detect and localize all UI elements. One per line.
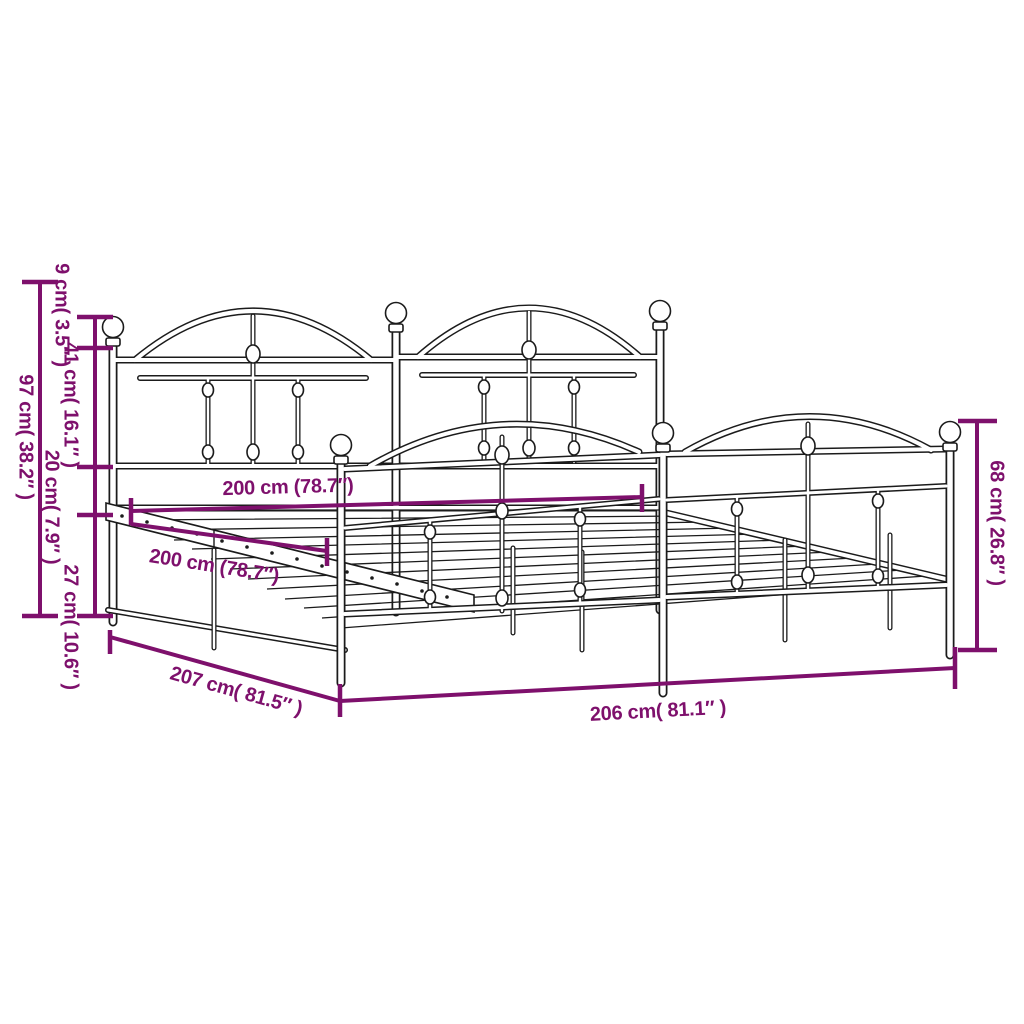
dim-label-20cm: 20 cm( 7.9″ ) (41, 450, 63, 565)
dim-label-206cm: 206 cm( 81.1″ ) (589, 697, 726, 726)
dimension-diagram: 9 cm( 3.5″ ) 41 cm( 16.1″ ) 20 cm( 7.9″ … (0, 0, 1024, 1024)
dimension-labels: 9 cm( 3.5″ ) 41 cm( 16.1″ ) 20 cm( 7.9″ … (15, 263, 1008, 726)
dim-label-68cm: 68 cm( 26.8″ ) (986, 460, 1008, 585)
footboard (331, 416, 961, 693)
dim-line-206cm (340, 668, 955, 701)
dim-label-200cm-inner: 200 cm (78.7″) (222, 474, 354, 500)
dimension-lines (22, 282, 997, 717)
dim-label-97cm: 97 cm( 38.2″ ) (15, 374, 37, 499)
bed-frame-diagram-svg: 9 cm( 3.5″ ) 41 cm( 16.1″ ) 20 cm( 7.9″ … (0, 0, 1024, 1024)
dim-label-27cm: 27 cm( 10.6″ ) (60, 564, 82, 689)
